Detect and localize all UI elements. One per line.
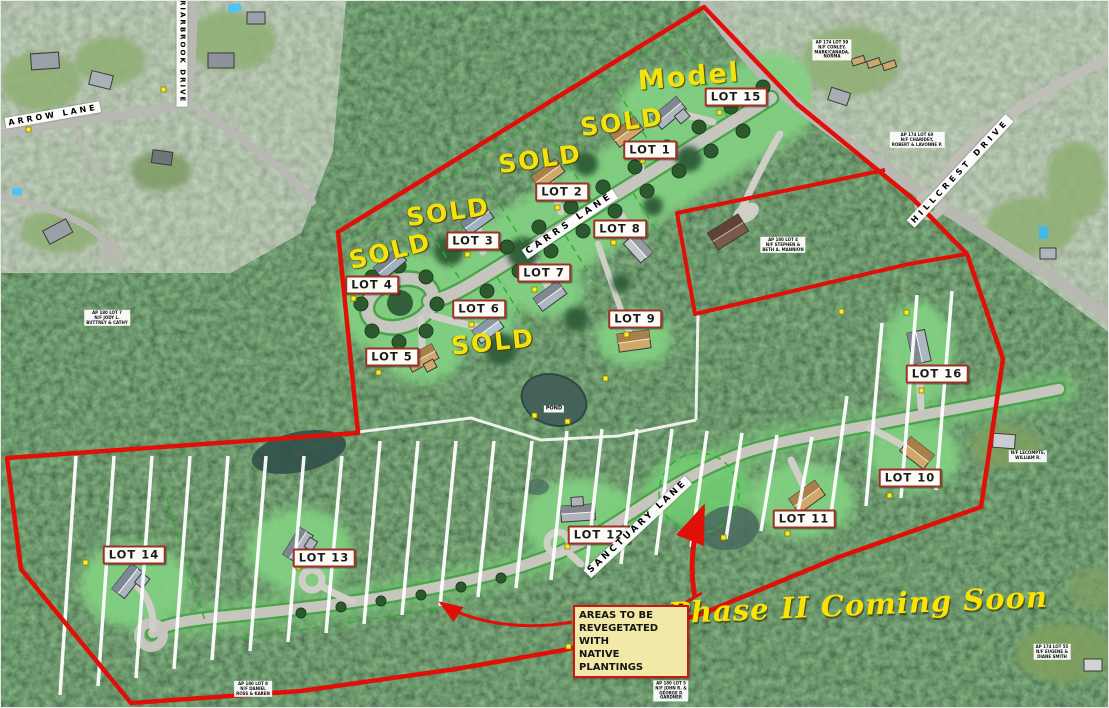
lot-label-10: LOT 10 — [879, 469, 942, 488]
lot-label-9: LOT 9 — [608, 310, 662, 329]
lot-label-4: LOT 4 — [345, 276, 399, 295]
parcel-label-1: AP 174 LOT 60 N/F CHARIDEY, ROBERT & LAV… — [890, 132, 945, 148]
lot-label-7: LOT 7 — [517, 264, 571, 283]
revegetation-note: AREAS TO BE REVEGETATED WITH NATIVE PLAN… — [573, 605, 689, 678]
parcel-label-4: AP 180 LOT 7 N/F JODY L. BUTTREY & CATHY — [84, 310, 130, 326]
lot-label-8: LOT 8 — [593, 220, 647, 239]
lot-label-13: LOT 13 — [293, 549, 356, 568]
lot-label-2: LOT 2 — [535, 183, 589, 202]
lot-label-1: LOT 1 — [623, 141, 677, 160]
parcel-label-5: AP 180 LOT 5 N/F JOHN R. & GEORGE P. GAR… — [653, 680, 688, 701]
lot-label-5: LOT 5 — [365, 348, 419, 367]
parcel-label-6: AP 180 LOT 8 N/F DANIEL ROSS & KAREN — [234, 681, 272, 697]
pond-label: POND — [544, 406, 564, 413]
lot-label-14: LOT 14 — [103, 546, 166, 565]
parcel-label-2: AP 174 LOT 59 N/F CONLEY, MARK/CANADA, N… — [812, 39, 851, 60]
lot-label-11: LOT 11 — [773, 510, 836, 529]
lot-label-3: LOT 3 — [446, 232, 500, 251]
parcel-label-7: N/F LECOMPTE, WILLIAM R. — [1009, 450, 1047, 462]
parcel-label-8: AP 174 LOT 55 N/F EUGENE & DIANE SMITH — [1034, 644, 1071, 660]
lot-label-16: LOT 16 — [906, 365, 969, 384]
lot-label-6: LOT 6 — [452, 300, 506, 319]
parcel-label-3: AP 180 LOT 4 N/F STEPHEN & BETH A. MANNI… — [760, 237, 805, 253]
street-label-briarbrook-drive: BRIARBROOK DRIVE — [177, 0, 188, 106]
aerial-site-map: LOT 1 LOT 2 LOT 3 LOT 4 LOT 5 LOT 6 LOT … — [0, 0, 1109, 708]
